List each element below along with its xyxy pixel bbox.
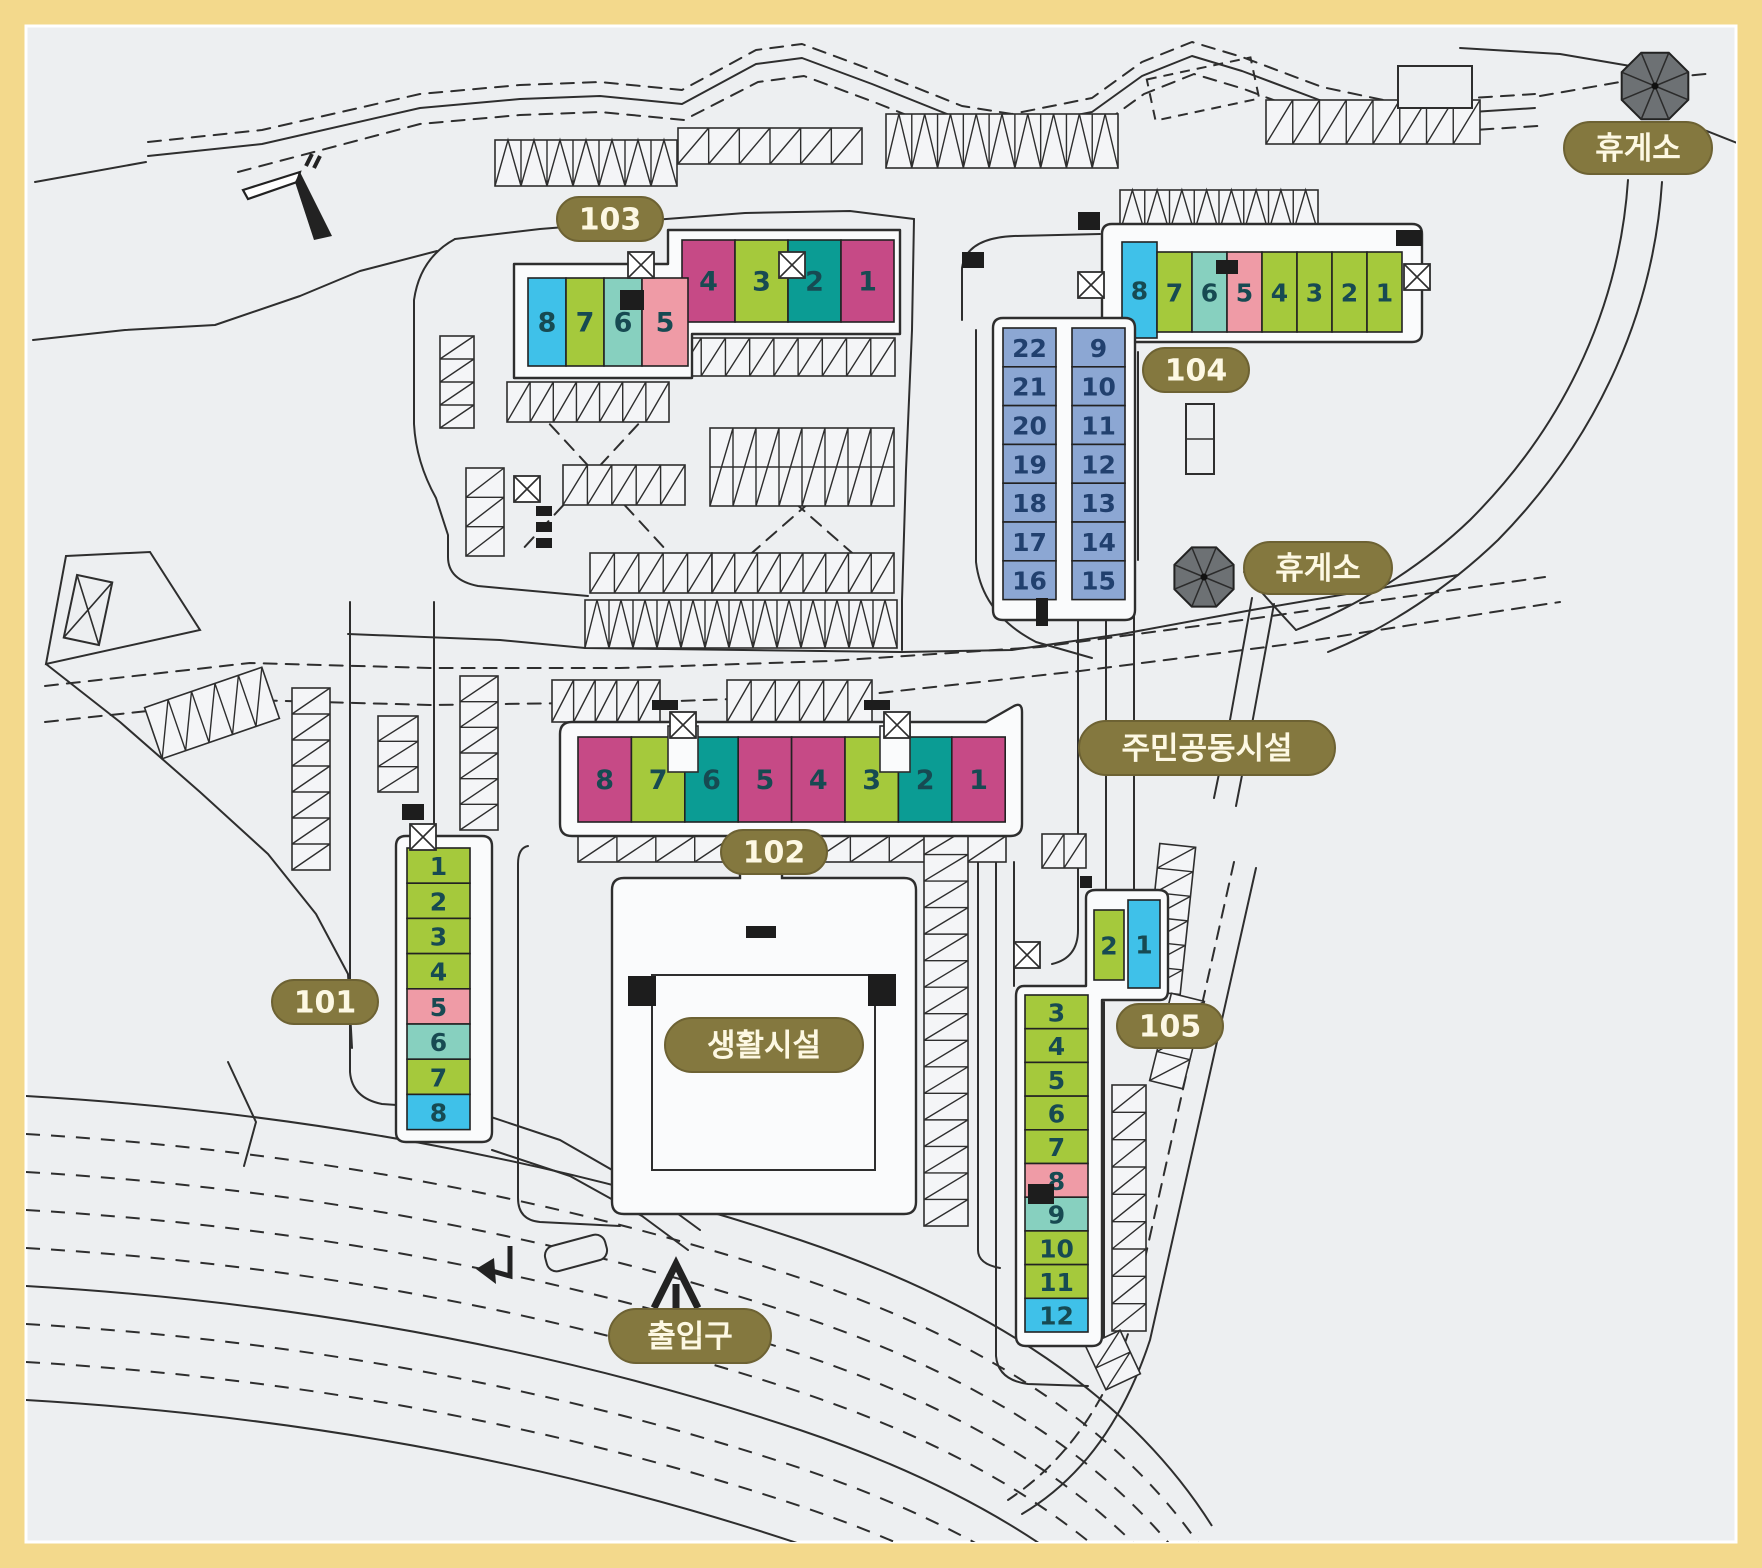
badge-105: 105 (1117, 1004, 1223, 1048)
parking-strip (292, 688, 330, 870)
building-102-unit-label-2: 2 (916, 765, 935, 796)
parking-strip (440, 336, 474, 428)
x-box (670, 712, 696, 738)
badge-101: 101 (272, 980, 378, 1024)
badge-rest-area-top-text: 휴게소 (1595, 131, 1681, 167)
door-mark (628, 976, 656, 1006)
building-104-row-unit-label-2: 2 (1341, 279, 1358, 308)
door-mark (1080, 876, 1092, 888)
door-mark (536, 506, 552, 516)
building-104-col-unit-label-21: 21 (1012, 373, 1047, 402)
building-101-unit-label-1: 1 (430, 852, 447, 881)
badge-105-text: 105 (1139, 1010, 1202, 1045)
site-plan: 4321876587654321222120191817169101112131… (0, 0, 1762, 1568)
building-104-col-unit-label-13: 13 (1081, 489, 1116, 518)
building-105-unit-label-4: 4 (1048, 1032, 1065, 1061)
building-102-unit-label-1: 1 (969, 765, 988, 796)
building-102: 87654321 (578, 737, 1005, 822)
door-mark (620, 290, 644, 310)
badge-living-facility: 생활시설 (665, 1018, 863, 1072)
parking-strip (590, 553, 712, 593)
building-104-col-unit-label-22: 22 (1012, 334, 1047, 363)
parking-strip (460, 676, 498, 830)
badge-rest-area-mid-text: 휴게소 (1275, 551, 1361, 587)
building-105-unit-label-3: 3 (1048, 998, 1065, 1027)
badge-104: 104 (1143, 348, 1249, 392)
x-box (779, 252, 805, 278)
building-102-unit-label-4: 4 (809, 765, 828, 796)
building-101-unit-label-8: 8 (430, 1099, 447, 1128)
building-102-unit-label-8: 8 (595, 765, 614, 796)
door-mark (536, 538, 552, 548)
building-103-unit-label-5: 5 (656, 308, 675, 339)
building-105-unit-label-2: 2 (1100, 932, 1117, 961)
badge-living-facility-text: 생활시설 (707, 1028, 821, 1064)
building-104-col-unit-label-18: 18 (1012, 489, 1047, 518)
building-101-unit-label-6: 6 (430, 1028, 447, 1057)
parking-strip (1112, 1085, 1146, 1331)
building-104-row-unit-label-1: 1 (1376, 279, 1393, 308)
building-105-unit-label-11: 11 (1039, 1268, 1074, 1297)
parking-strip (710, 428, 894, 506)
building-101: 12345678 (407, 848, 470, 1130)
badge-103: 103 (557, 197, 663, 241)
x-box (1014, 942, 1040, 968)
parking-strip (552, 680, 660, 722)
building-104-row-unit-label-4: 4 (1271, 279, 1288, 308)
badge-102-text: 102 (743, 836, 806, 871)
building-104-col-unit-label-9: 9 (1090, 334, 1107, 363)
door-mark (402, 804, 424, 820)
building-104-row-unit-label-7: 7 (1166, 279, 1183, 308)
x-box (410, 824, 436, 850)
door-mark (1396, 230, 1422, 246)
building-104-col-unit-label-19: 19 (1012, 450, 1047, 479)
x-box (514, 476, 540, 502)
building-104-row: 87654321 (1122, 242, 1402, 338)
building-104-col-unit-label-17: 17 (1012, 528, 1047, 557)
x-box (628, 252, 654, 278)
parking-strip (677, 338, 895, 376)
site-plan-svg: 4321876587654321222120191817169101112131… (0, 0, 1762, 1568)
building-104-col-unit-label-11: 11 (1081, 412, 1116, 441)
x-box (1404, 264, 1430, 290)
building-103-unit-label-2: 2 (805, 267, 824, 298)
building-104-col-unit-label-14: 14 (1081, 528, 1116, 557)
building-102-unit-label-5: 5 (756, 765, 775, 796)
x-box (884, 712, 910, 738)
building-102-unit-label-7: 7 (649, 765, 668, 796)
umbrella-icon-mid (1174, 547, 1233, 606)
building-104-col-unit-label-16: 16 (1012, 567, 1047, 596)
umbrella-icon-top (1622, 53, 1689, 120)
parking-strip (678, 128, 862, 164)
badge-102: 102 (721, 830, 827, 874)
parking-strip (1042, 834, 1086, 868)
building-104-row-unit-label-3: 3 (1306, 279, 1323, 308)
building-104-col-unit-label-15: 15 (1081, 567, 1116, 596)
badge-101-text: 101 (294, 986, 357, 1021)
parking-strip (727, 680, 872, 722)
building-105-unit-label-1: 1 (1135, 931, 1152, 960)
building-101-unit-label-2: 2 (430, 887, 447, 916)
parking-strip (585, 600, 897, 648)
building-104-row-unit-label-6: 6 (1201, 279, 1218, 308)
building-105-unit-label-10: 10 (1039, 1234, 1074, 1263)
door-mark (1036, 598, 1048, 626)
door-mark (962, 252, 984, 268)
badge-rest-area-mid: 휴게소 (1244, 542, 1392, 594)
door-mark (1216, 260, 1238, 274)
badge-community-facility: 주민공동시설 (1079, 721, 1335, 775)
parking-strip (924, 828, 968, 1226)
door-mark (864, 700, 890, 710)
door-mark (1028, 1184, 1054, 1204)
badge-rest-area-top: 휴게소 (1564, 122, 1712, 174)
building-104-row-unit-label-5: 5 (1236, 279, 1253, 308)
parking-strip (466, 468, 504, 556)
badge-entrance: 출입구 (609, 1309, 771, 1363)
building-101-unit-label-3: 3 (430, 923, 447, 952)
badge-community-facility-text: 주민공동시설 (1121, 731, 1292, 767)
door-mark (536, 522, 552, 532)
badge-104-text: 104 (1165, 354, 1228, 389)
building-103-unit-label-8: 8 (538, 308, 557, 339)
badge-103-text: 103 (579, 203, 642, 238)
parking-strip (495, 140, 677, 186)
door-mark (868, 974, 896, 1006)
building-105-unit-label-12: 12 (1039, 1302, 1074, 1331)
building-103-unit-label-6: 6 (614, 308, 633, 339)
building-104-col-unit-label-10: 10 (1081, 373, 1116, 402)
building-104-row-unit-label-8: 8 (1131, 277, 1148, 306)
door-mark (746, 926, 776, 938)
building-103-unit-label-4: 4 (699, 267, 718, 298)
door-mark (1078, 212, 1100, 230)
door-mark (652, 700, 678, 710)
building-105-unit-label-7: 7 (1048, 1133, 1065, 1162)
building-105-unit-label-9: 9 (1048, 1201, 1065, 1230)
building-103-unit-label-3: 3 (752, 267, 771, 298)
building-102-unit-label-6: 6 (702, 765, 721, 796)
parking-strip (378, 716, 418, 792)
building-105-unit-label-5: 5 (1048, 1066, 1065, 1095)
building-101-unit-label-4: 4 (430, 958, 447, 987)
x-box (1078, 272, 1104, 298)
parking-strip (563, 465, 685, 505)
small-building (1398, 66, 1472, 108)
parking-strip (886, 114, 1118, 168)
building-104-col-unit-label-12: 12 (1081, 450, 1116, 479)
parking-strip (507, 382, 669, 422)
building-101-unit-label-7: 7 (430, 1063, 447, 1092)
building-104-col-unit-label-20: 20 (1012, 412, 1047, 441)
building-102-unit-label-3: 3 (862, 765, 881, 796)
building-103-unit-label-1: 1 (858, 267, 877, 298)
building-105-unit-label-6: 6 (1048, 1099, 1065, 1128)
building-103-unit-label-7: 7 (576, 308, 595, 339)
building-101-unit-label-5: 5 (430, 993, 447, 1022)
badge-entrance-text: 출입구 (647, 1319, 733, 1355)
parking-strip (712, 553, 894, 593)
